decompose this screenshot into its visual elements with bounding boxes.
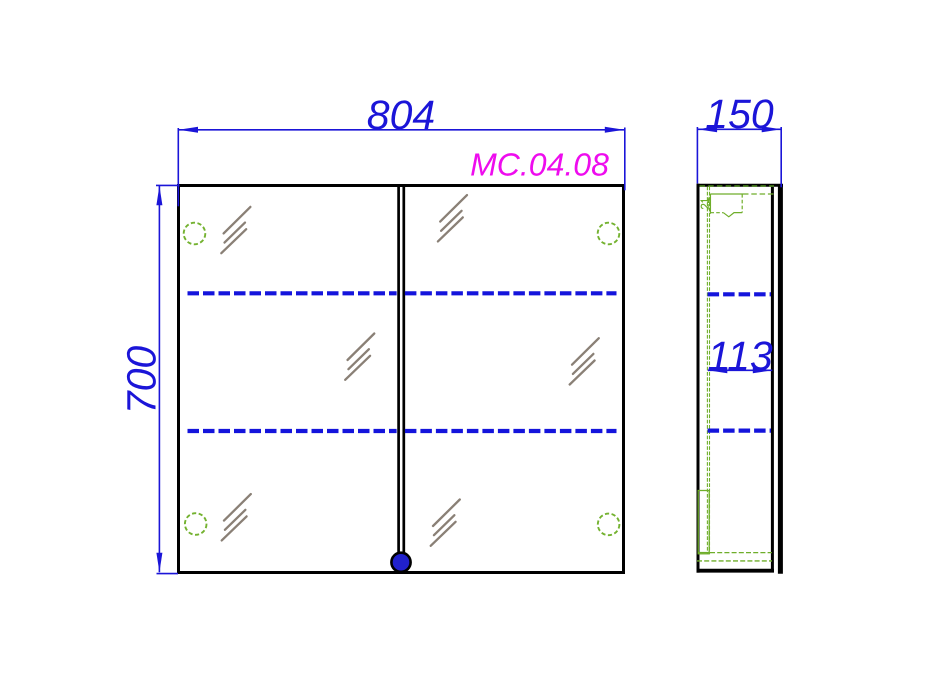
svg-text:804: 804 [367,92,435,138]
svg-text:MC.04.08: MC.04.08 [470,146,609,182]
svg-text:150: 150 [705,91,774,137]
svg-text:700: 700 [119,346,165,415]
svg-text:113: 113 [707,333,773,379]
